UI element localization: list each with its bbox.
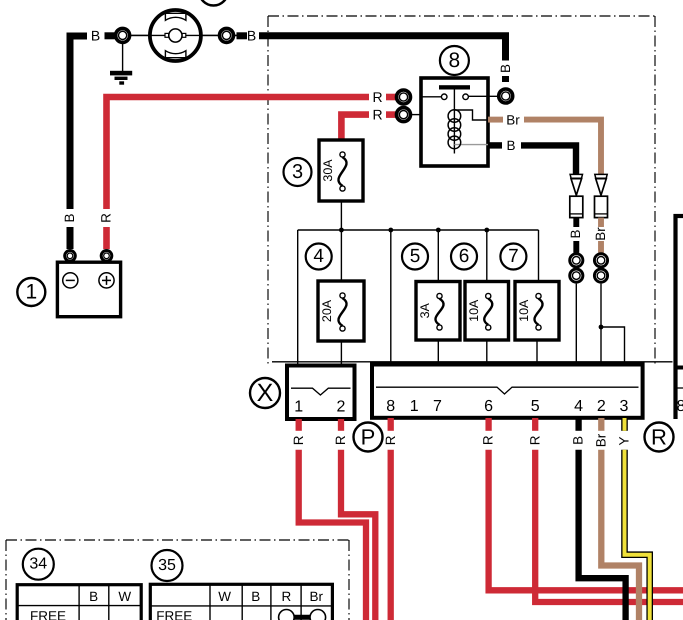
svg-text:R: R — [527, 435, 542, 445]
svg-text:R: R — [372, 106, 382, 122]
svg-text:B: B — [568, 229, 583, 238]
svg-text:R: R — [291, 435, 306, 445]
svg-text:Br: Br — [506, 112, 520, 127]
svg-text:8: 8 — [449, 49, 461, 72]
svg-text:34: 34 — [29, 556, 47, 573]
svg-text:2: 2 — [337, 399, 346, 416]
svg-text:B: B — [91, 27, 100, 43]
svg-text:8: 8 — [386, 398, 395, 415]
svg-text:B: B — [89, 589, 98, 604]
svg-text:Br: Br — [593, 227, 608, 241]
svg-text:R: R — [651, 425, 667, 450]
svg-text:4: 4 — [313, 246, 324, 267]
svg-text:B: B — [571, 436, 586, 445]
svg-text:B: B — [498, 64, 513, 73]
svg-text:4: 4 — [574, 398, 583, 415]
svg-text:8: 8 — [677, 398, 683, 415]
svg-text:R: R — [333, 435, 348, 445]
svg-text:B: B — [62, 213, 77, 222]
svg-text:W: W — [118, 589, 131, 604]
svg-text:7: 7 — [508, 246, 519, 267]
svg-text:10A: 10A — [517, 299, 531, 322]
svg-text:3A: 3A — [418, 302, 432, 318]
svg-text:3: 3 — [620, 398, 629, 415]
svg-text:7: 7 — [433, 398, 442, 415]
svg-text:20A: 20A — [320, 299, 334, 322]
svg-text:6: 6 — [459, 246, 470, 267]
svg-text:1: 1 — [25, 281, 37, 304]
svg-text:R: R — [481, 435, 496, 445]
svg-text:1: 1 — [294, 399, 303, 416]
svg-text:10A: 10A — [467, 299, 481, 322]
svg-text:1: 1 — [410, 398, 419, 415]
svg-text:Br: Br — [310, 589, 324, 604]
svg-text:Y: Y — [617, 436, 632, 445]
svg-text:B: B — [506, 138, 515, 153]
svg-text:R: R — [99, 213, 114, 223]
svg-text:B: B — [247, 27, 256, 43]
svg-text:6: 6 — [484, 398, 493, 415]
svg-text:R: R — [372, 89, 382, 105]
svg-text:P: P — [361, 425, 376, 450]
svg-text:35: 35 — [158, 557, 176, 574]
svg-text:5: 5 — [410, 246, 421, 267]
svg-text:5: 5 — [531, 398, 540, 415]
svg-text:2: 2 — [597, 398, 606, 415]
svg-text:FREE: FREE — [30, 609, 66, 620]
svg-text:X: X — [257, 379, 274, 407]
svg-text:W: W — [218, 589, 231, 604]
svg-text:R: R — [383, 435, 398, 445]
svg-text:R: R — [282, 589, 292, 604]
svg-text:FREE: FREE — [156, 609, 192, 620]
svg-text:B: B — [251, 589, 260, 604]
svg-text:30A: 30A — [321, 159, 335, 182]
svg-text:3: 3 — [292, 161, 303, 183]
svg-text:Br: Br — [593, 433, 608, 447]
